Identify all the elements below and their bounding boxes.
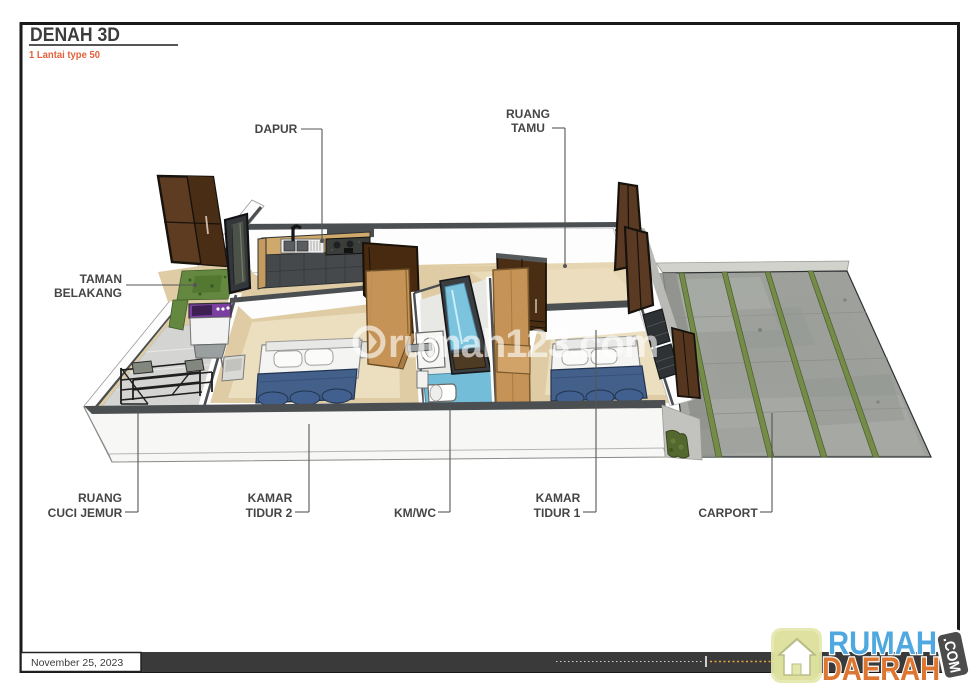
svg-text:DENAH 3D: DENAH 3D — [30, 25, 120, 46]
svg-text:RUANG: RUANG — [506, 107, 550, 121]
svg-text:DAERAH: DAERAH — [822, 651, 940, 687]
svg-text:KAMAR: KAMAR — [248, 491, 293, 505]
svg-text:TIDUR 2: TIDUR 2 — [246, 506, 293, 520]
svg-text:rumah123.com: rumah123.com — [388, 322, 658, 366]
svg-text:KM/WC: KM/WC — [394, 506, 436, 520]
svg-text:TAMU: TAMU — [511, 121, 545, 135]
svg-text:November 25, 2023: November 25, 2023 — [31, 657, 123, 669]
svg-text:CUCI JEMUR: CUCI JEMUR — [48, 506, 123, 520]
svg-text:DAPUR: DAPUR — [255, 122, 298, 136]
svg-text:KAMAR: KAMAR — [536, 491, 581, 505]
svg-text:TAMAN: TAMAN — [80, 272, 122, 286]
svg-text:CARPORT: CARPORT — [698, 506, 758, 520]
svg-text:TIDUR 1: TIDUR 1 — [534, 506, 581, 520]
svg-text:RUANG: RUANG — [78, 491, 122, 505]
svg-text:1 Lantai type 50: 1 Lantai type 50 — [29, 49, 100, 61]
svg-text:BELAKANG: BELAKANG — [54, 286, 122, 300]
